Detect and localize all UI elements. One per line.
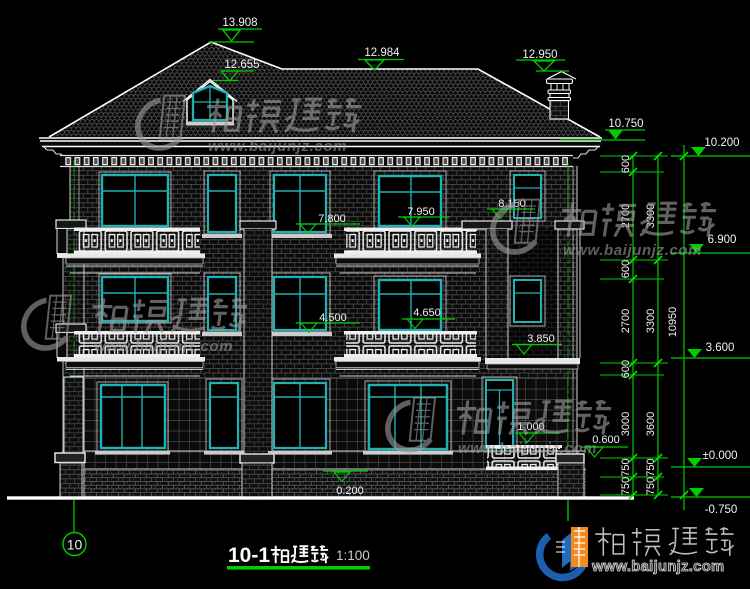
svg-text:3600: 3600 <box>645 412 657 436</box>
svg-text:10-1: 10-1 <box>228 544 270 567</box>
svg-text:0.200: 0.200 <box>336 485 364 497</box>
svg-text:750: 750 <box>620 458 632 476</box>
svg-text:600: 600 <box>620 360 632 378</box>
svg-text:12.950: 12.950 <box>522 49 557 61</box>
svg-text:-0.750: -0.750 <box>705 504 738 516</box>
svg-text:3000: 3000 <box>620 412 632 436</box>
svg-text:4.500: 4.500 <box>319 312 347 324</box>
svg-text:www.baijunjz.com: www.baijunjz.com <box>591 559 725 575</box>
svg-text:1:100: 1:100 <box>336 548 370 563</box>
svg-text:10.750: 10.750 <box>608 118 643 130</box>
svg-text:13.908: 13.908 <box>222 17 257 29</box>
svg-text:2700: 2700 <box>620 309 632 333</box>
svg-text:7.950: 7.950 <box>407 206 435 218</box>
svg-text:600: 600 <box>620 155 632 173</box>
svg-text:4.650: 4.650 <box>413 307 441 319</box>
svg-text:7.800: 7.800 <box>318 213 346 225</box>
svg-text:3300: 3300 <box>645 309 657 333</box>
svg-text:6.900: 6.900 <box>708 234 737 246</box>
svg-text:10: 10 <box>67 537 83 553</box>
svg-text:10950: 10950 <box>667 307 679 338</box>
svg-text:±0.000: ±0.000 <box>702 450 737 462</box>
svg-text:3.600: 3.600 <box>706 342 735 354</box>
svg-text:600: 600 <box>620 260 632 278</box>
svg-text:12.655: 12.655 <box>224 59 259 71</box>
svg-text:750: 750 <box>645 477 657 495</box>
svg-text:12.984: 12.984 <box>364 47 400 59</box>
svg-text:750: 750 <box>620 477 632 495</box>
svg-text:3.850: 3.850 <box>527 333 555 345</box>
svg-text:750: 750 <box>645 458 657 476</box>
svg-text:10.200: 10.200 <box>704 137 739 149</box>
